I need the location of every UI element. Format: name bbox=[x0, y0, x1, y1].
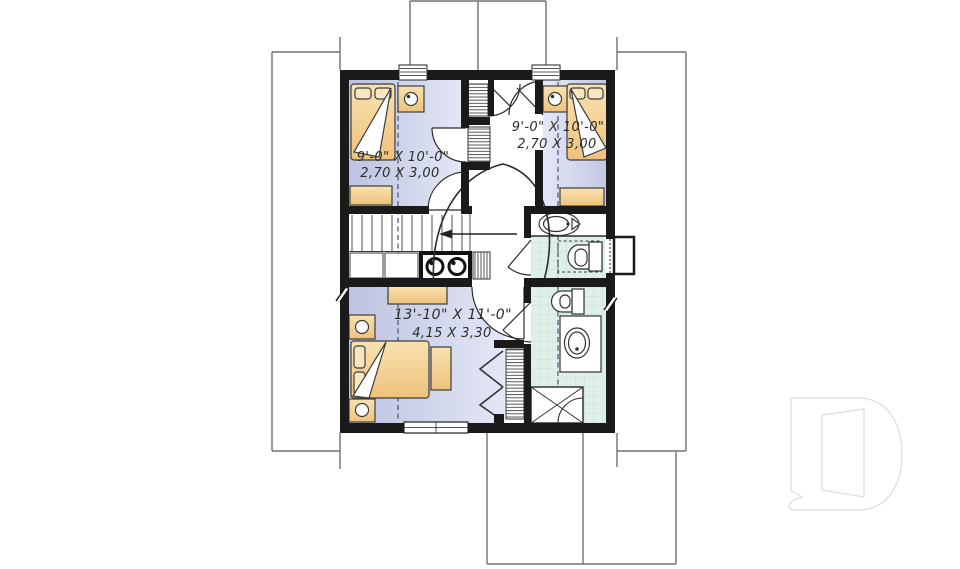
toilet-tank bbox=[589, 242, 602, 271]
closet-rod-hatch bbox=[468, 127, 490, 162]
dresser bbox=[560, 188, 604, 206]
floor-plan-drawing: 9'-0" X 10'-0" 2,70 X 3,00 9'-0" X 10'-0… bbox=[0, 0, 960, 569]
pillow bbox=[588, 88, 603, 99]
bedroom-upper-left-dims-m: 2,70 X 3,00 bbox=[360, 166, 439, 181]
washer-icon bbox=[427, 259, 443, 275]
stair-railing bbox=[473, 252, 490, 279]
lamp-icon bbox=[356, 404, 369, 417]
closet-rod-hatch bbox=[506, 349, 524, 419]
bedroom-lower-dims-m: 4,15 X 3,30 bbox=[412, 326, 491, 341]
door-toilet-room bbox=[508, 240, 531, 275]
bedroom-upper-right-dims-ft: 9'-0" X 10'-0" bbox=[512, 120, 605, 135]
pillow bbox=[354, 346, 365, 368]
window bbox=[532, 65, 560, 80]
dresser bbox=[350, 186, 392, 205]
watermark-d-logo bbox=[789, 398, 902, 510]
bench bbox=[431, 347, 451, 390]
dryer-icon bbox=[449, 259, 465, 275]
bedroom-upper-right-dims-m: 2,70 X 3,00 bbox=[517, 137, 596, 152]
under-stair-cabinet bbox=[350, 253, 383, 278]
floor-plan-page: 9'-0" X 10'-0" 2,70 X 3,00 9'-0" X 10'-0… bbox=[0, 0, 960, 569]
lamp-icon bbox=[549, 93, 562, 106]
lamp-icon bbox=[405, 93, 418, 106]
lamp-icon bbox=[356, 321, 369, 334]
window bbox=[399, 65, 427, 80]
dresser bbox=[388, 286, 447, 304]
closet-rod-hatch bbox=[466, 84, 488, 116]
dormer-nook bbox=[614, 237, 634, 274]
under-stair-cabinet bbox=[385, 253, 418, 278]
pillow bbox=[355, 88, 371, 99]
bedroom-lower-dims-ft: 13'-10" X 11'-0" bbox=[394, 307, 512, 323]
toilet-tank bbox=[572, 289, 584, 314]
bedroom-upper-left-dims-ft: 9'-0" X 10'-0" bbox=[357, 150, 450, 165]
